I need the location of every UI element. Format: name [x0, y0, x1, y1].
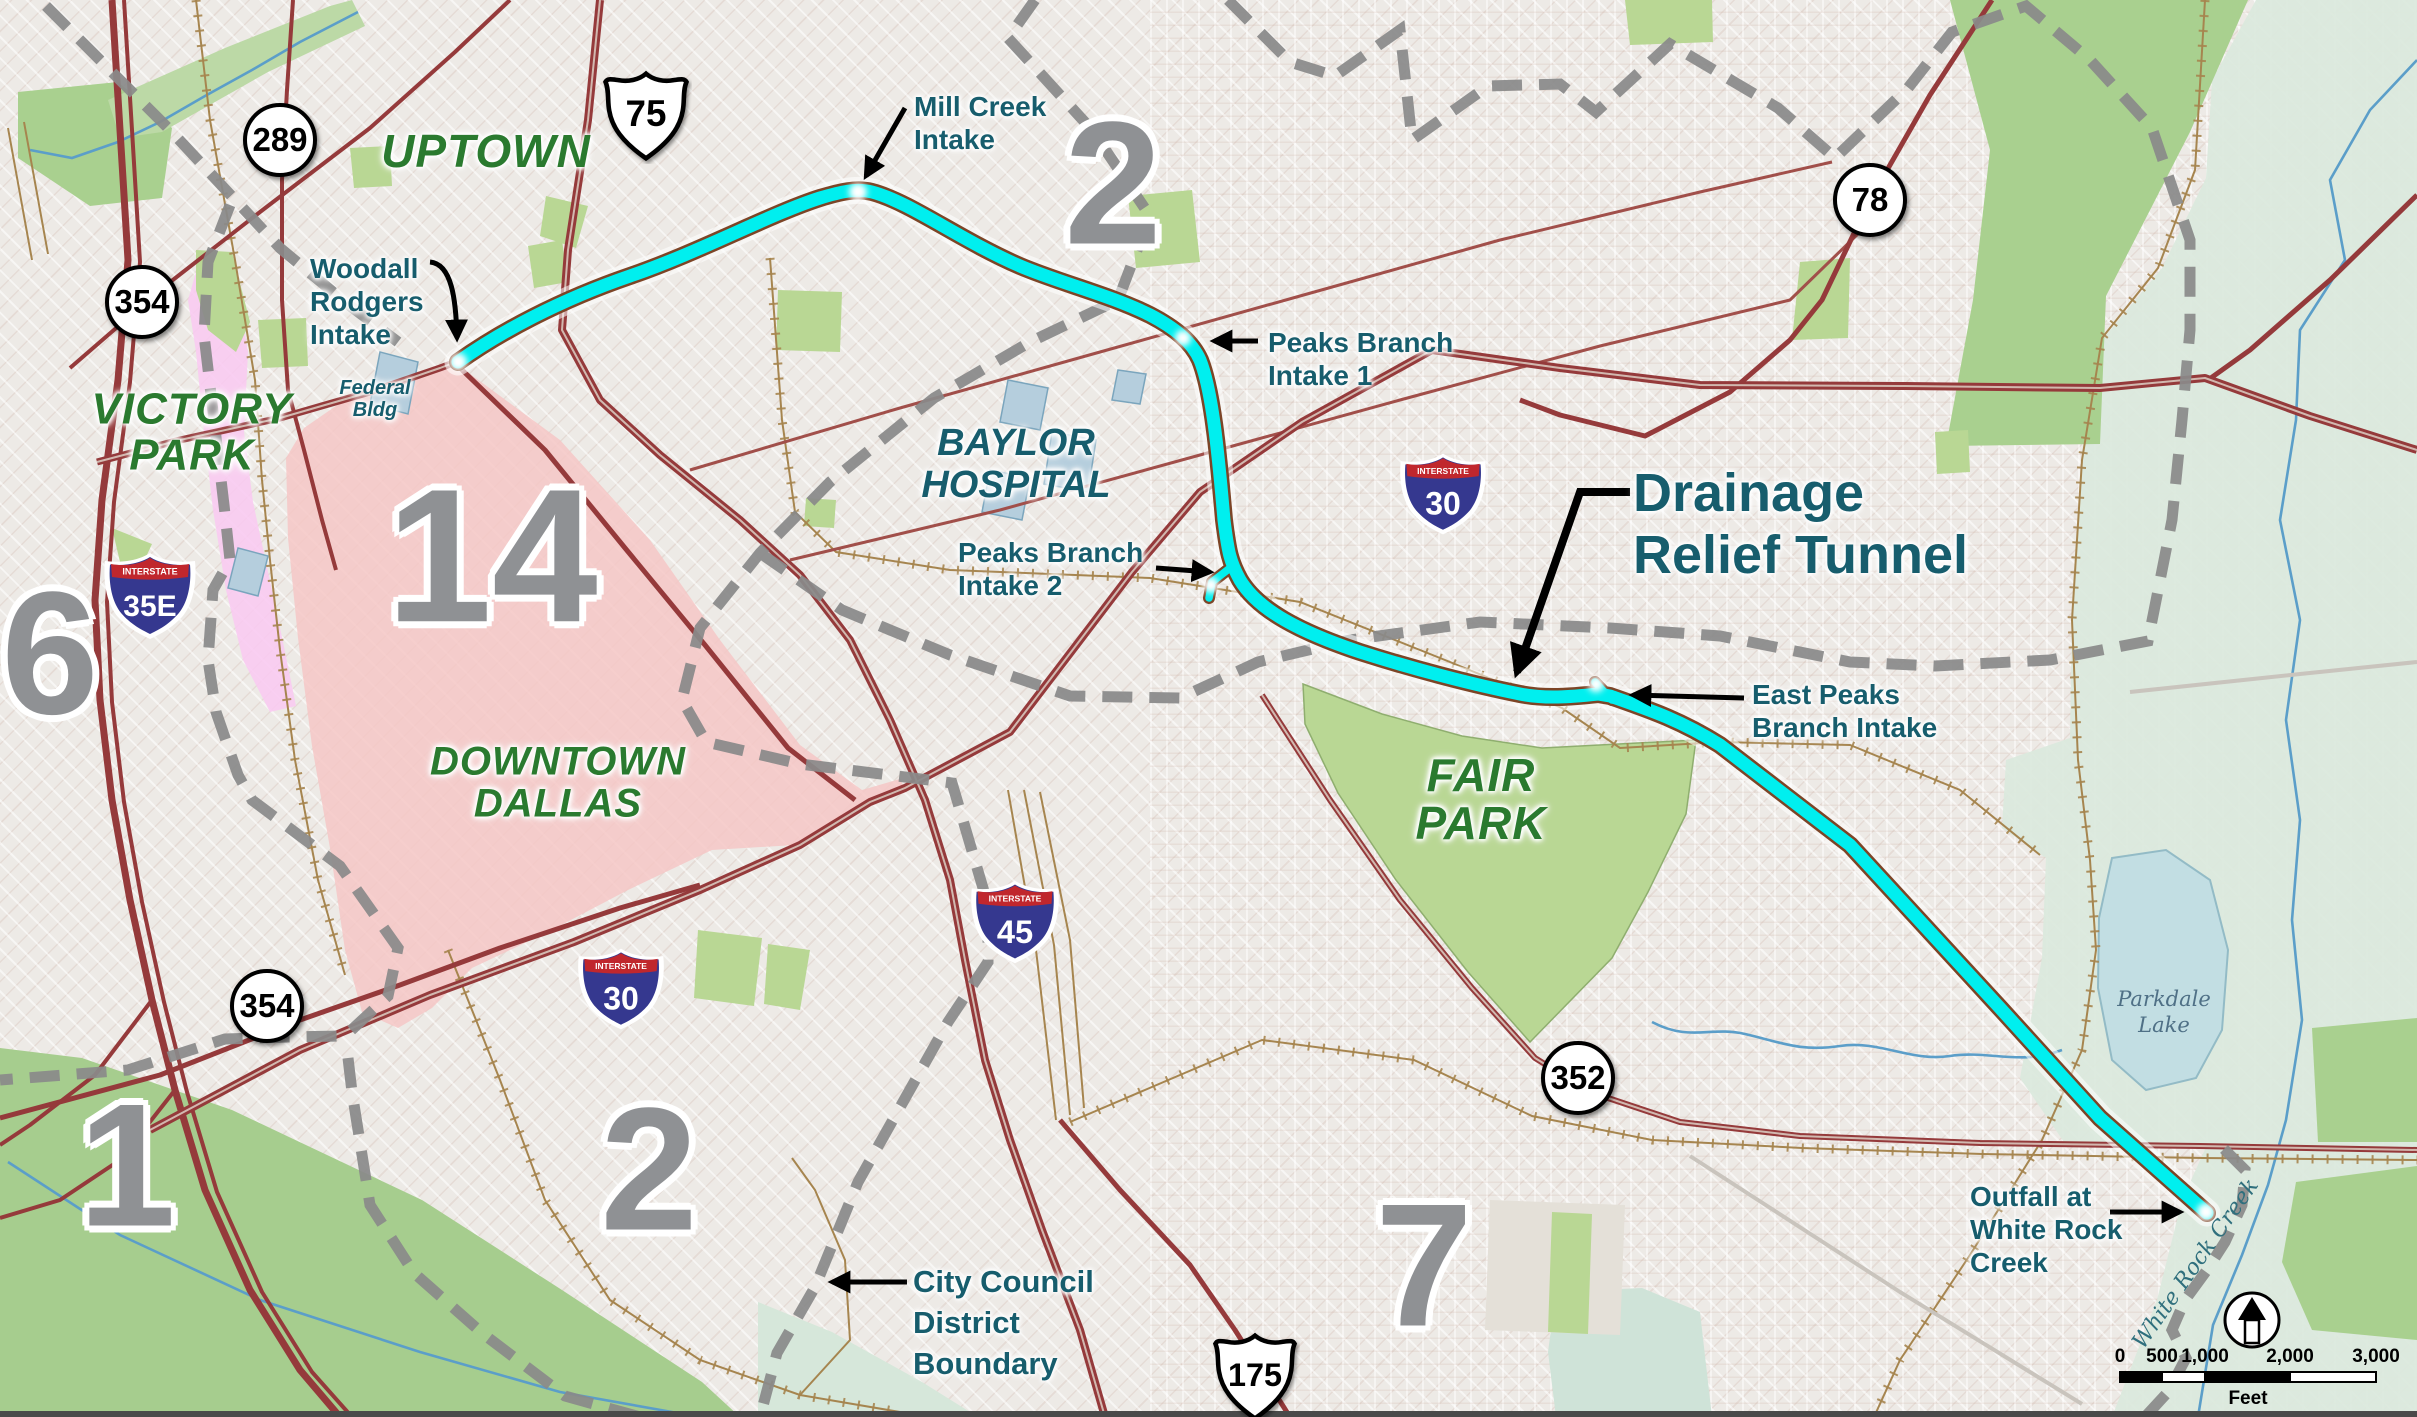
map-bottom-edge: [0, 1411, 2417, 1417]
parkdale-lake-polygon: [2098, 850, 2228, 1090]
downtown-pink-area: [286, 365, 906, 1028]
turtle-creek-band: [108, 0, 365, 138]
route-shield-354-north: 354: [105, 265, 179, 339]
dallas-tunnel-map: 0 500 1,000 2,000 3,000 Feet 14 2 2 6 1 …: [0, 0, 2417, 1417]
us175-number: 175: [1228, 1357, 1282, 1393]
i30e-number: 30: [1425, 486, 1461, 522]
i35e-number: 35E: [123, 590, 176, 623]
area-fills: [0, 0, 2417, 1417]
i45-number: 45: [997, 913, 1033, 950]
green-se-of-lake-1: [2312, 1018, 2417, 1142]
route-shield-354-south: 354: [230, 969, 304, 1043]
north-arrow: [2225, 1293, 2279, 1347]
route-shield-352: 352: [1541, 1041, 1615, 1115]
us75-number: 75: [626, 93, 667, 134]
route-shield-289: 289: [243, 103, 317, 177]
i45-interstate-word: INTERSTATE: [989, 893, 1042, 903]
rail-junction-greenbelt: [758, 1302, 978, 1417]
trinity-greenbelt: [0, 1048, 740, 1417]
scale-tick-3000: 3,000: [2352, 1346, 2400, 1367]
scale-tick-2000: 2,000: [2266, 1346, 2314, 1367]
east-peaks-arrow: [1633, 695, 1744, 698]
scale-unit: Feet: [2228, 1388, 2268, 1409]
mill-creek-arrow: [866, 108, 905, 176]
scale-tick-0: 0: [2115, 1346, 2126, 1367]
woodall-arrow: [430, 262, 457, 338]
scale-tick-500: 500: [2146, 1346, 2178, 1367]
scale-tick-1000: 1,000: [2181, 1346, 2229, 1367]
tunnel-leader-arrow: [1517, 492, 1630, 672]
i30e-interstate-word: INTERSTATE: [1417, 466, 1469, 476]
i30d-interstate-word: INTERSTATE: [595, 961, 647, 971]
i35e-interstate-word: INTERSTATE: [122, 567, 177, 577]
route-shield-78: 78: [1833, 163, 1907, 237]
map-canvas: 0 500 1,000 2,000 3,000 Feet: [0, 0, 2417, 1417]
peaks2-arrow: [1156, 568, 1210, 572]
baylor-buildings: [1000, 380, 1048, 430]
fair-park-polygon: [1303, 684, 1696, 1042]
i30d-number: 30: [603, 981, 639, 1017]
ross-ave: [690, 162, 1832, 470]
